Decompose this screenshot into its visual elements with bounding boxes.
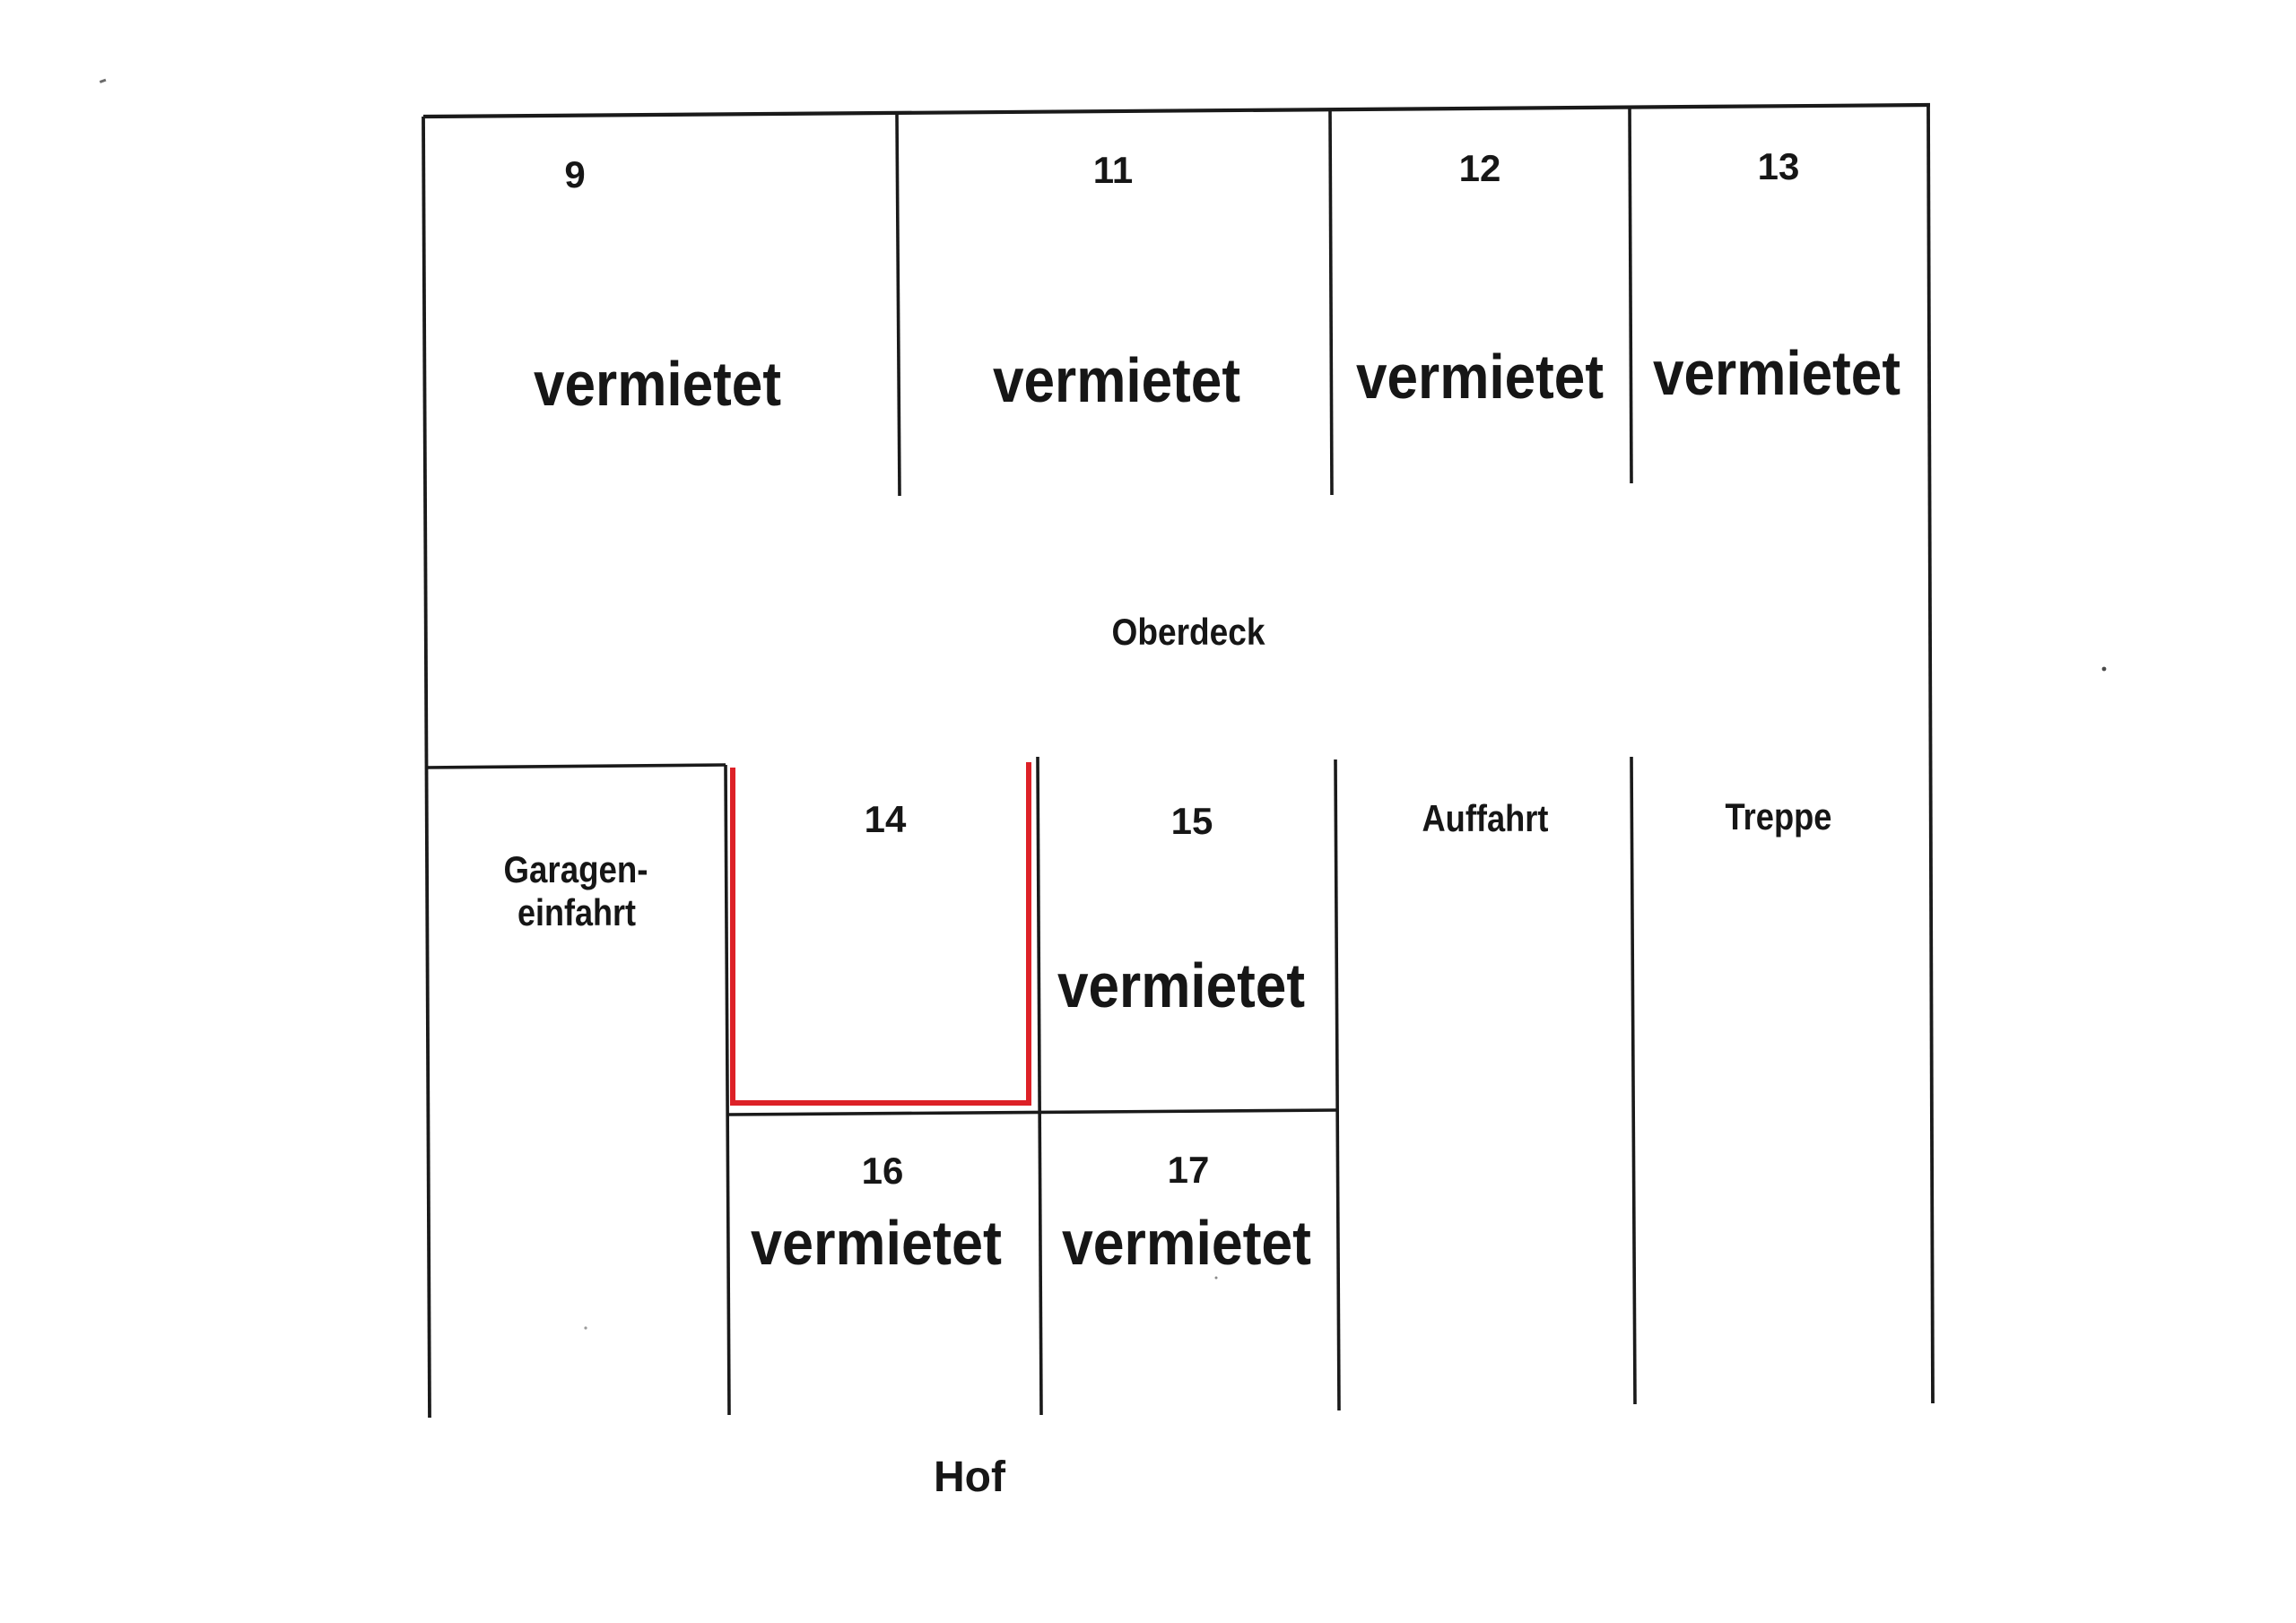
- svg-text:vermietet: vermietet: [1653, 338, 1900, 408]
- svg-text:vermietet: vermietet: [534, 349, 781, 419]
- svg-text:12: 12: [1459, 147, 1501, 189]
- svg-text:Auffahrt: Auffahrt: [1422, 797, 1549, 839]
- svg-text:vermietet: vermietet: [751, 1208, 1002, 1278]
- svg-text:Treppe: Treppe: [1726, 795, 1832, 838]
- svg-text:vermietet: vermietet: [1356, 342, 1604, 412]
- svg-text:15: 15: [1171, 800, 1213, 842]
- svg-text:14: 14: [865, 798, 907, 840]
- svg-text:einfahrt: einfahrt: [517, 891, 636, 933]
- svg-text:vermietet: vermietet: [1057, 950, 1305, 1020]
- svg-text:Hof: Hof: [934, 1454, 1006, 1501]
- svg-text:9: 9: [564, 153, 585, 195]
- svg-text:vermietet: vermietet: [1062, 1208, 1311, 1278]
- svg-text:17: 17: [1168, 1149, 1210, 1191]
- svg-text:vermietet: vermietet: [993, 345, 1240, 415]
- svg-text:Oberdeck: Oberdeck: [1112, 611, 1266, 653]
- svg-text:13: 13: [1758, 145, 1800, 187]
- svg-text:11: 11: [1093, 149, 1133, 191]
- svg-text:Garagen-: Garagen-: [504, 848, 648, 890]
- svg-text:16: 16: [862, 1150, 904, 1192]
